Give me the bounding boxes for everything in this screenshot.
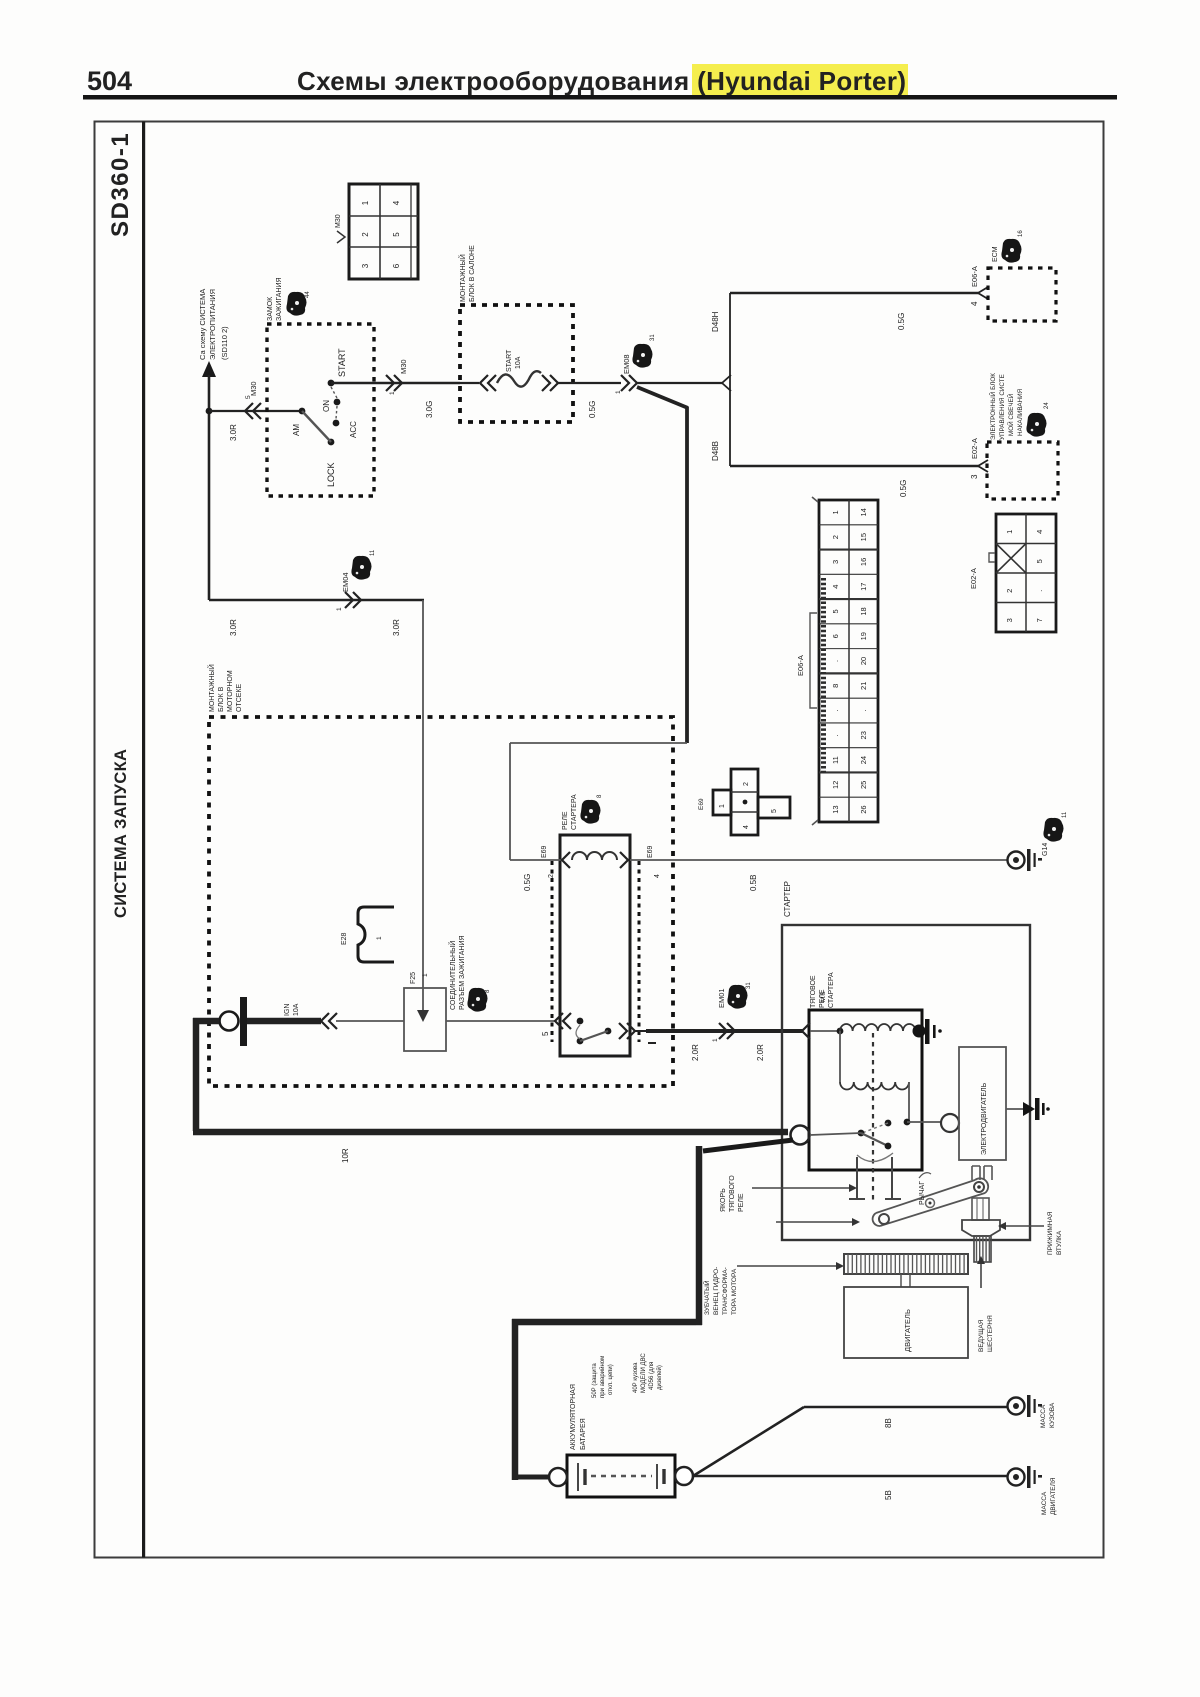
svg-text:Са схему СИСТЕМА: Са схему СИСТЕМА (198, 289, 207, 360)
svg-text:E69: E69 (698, 798, 705, 810)
svg-text:1: 1 (336, 607, 343, 611)
svg-text:М.S: М.S (821, 991, 827, 1002)
svg-text:5: 5 (392, 232, 401, 237)
svg-text:31: 31 (746, 982, 752, 989)
svg-text:17: 17 (859, 583, 868, 591)
svg-text:2: 2 (831, 535, 840, 539)
svg-text:дизелей): дизелей) (656, 1365, 663, 1390)
svg-text:11: 11 (831, 756, 840, 764)
svg-text:6: 6 (831, 634, 840, 638)
svg-text:при аварийном: при аварийном (599, 1356, 606, 1398)
svg-text:.: . (1035, 590, 1044, 592)
svg-text:3.0G: 3.0G (425, 401, 434, 418)
svg-text:F25: F25 (410, 972, 417, 984)
svg-text:14: 14 (859, 508, 868, 516)
svg-text:12: 12 (831, 781, 840, 789)
svg-text:4: 4 (654, 874, 661, 878)
svg-text:1: 1 (719, 804, 726, 808)
svg-text:2.0R: 2.0R (691, 1044, 700, 1061)
svg-text:LOCK: LOCK (326, 462, 336, 487)
svg-text:E06-A: E06-A (796, 655, 805, 676)
svg-text:3: 3 (970, 474, 979, 479)
svg-text:ЭЛЕКТРОННЫЙ БЛОК: ЭЛЕКТРОННЫЙ БЛОК (988, 373, 997, 440)
svg-text:5: 5 (831, 609, 840, 613)
svg-text:7: 7 (1035, 618, 1044, 622)
svg-text:10A: 10A (515, 356, 522, 369)
svg-text:11: 11 (370, 549, 376, 556)
svg-text:6: 6 (392, 263, 401, 268)
svg-text:ТОРА МОТОРА: ТОРА МОТОРА (731, 1268, 738, 1315)
svg-text:5: 5 (771, 809, 778, 813)
svg-text:EM04: EM04 (341, 572, 350, 592)
svg-text:11: 11 (1062, 811, 1068, 818)
svg-text:0.5G: 0.5G (588, 401, 597, 418)
svg-text:ВЕНЕЦ ГИДРО-: ВЕНЕЦ ГИДРО- (713, 1267, 720, 1315)
svg-text:D48B: D48B (711, 441, 720, 461)
svg-text:3: 3 (831, 560, 840, 564)
svg-text:G14: G14 (1042, 843, 1049, 856)
svg-text:M30: M30 (399, 359, 408, 374)
svg-text:504: 504 (87, 66, 132, 96)
svg-text:3.0R: 3.0R (392, 619, 401, 636)
svg-text:МОЙ СВЕЧЕЙ: МОЙ СВЕЧЕЙ (1006, 393, 1015, 436)
svg-text:5: 5 (245, 395, 252, 399)
svg-text:D48H: D48H (711, 311, 720, 332)
svg-text:2.0R: 2.0R (756, 1044, 765, 1061)
svg-text:НАКАЛИВАНИЯ: НАКАЛИВАНИЯ (1017, 388, 1024, 436)
svg-text:4: 4 (392, 200, 401, 205)
svg-text:РЕЛЕ: РЕЛЕ (738, 1193, 745, 1212)
svg-text:26: 26 (859, 805, 868, 813)
svg-text:БАТАРЕЯ: БАТАРЕЯ (580, 1418, 587, 1450)
svg-text:ЭЛЕКТРОДВИГАТЕЛЬ: ЭЛЕКТРОДВИГАТЕЛЬ (981, 1082, 988, 1155)
svg-text:5: 5 (1035, 559, 1044, 563)
svg-text:АККУМУЛЯТОРНАЯ: АККУМУЛЯТОРНАЯ (570, 1384, 577, 1450)
svg-text:1: 1 (389, 391, 396, 395)
svg-text:25: 25 (859, 781, 868, 789)
svg-text:2: 2 (743, 782, 750, 786)
svg-text:5: 5 (541, 1031, 550, 1036)
svg-text:ON: ON (322, 400, 331, 412)
svg-text:4: 4 (743, 825, 750, 829)
svg-text:50Р (защита: 50Р (защита (592, 1363, 598, 1398)
svg-text:4D56 (для: 4D56 (для (649, 1362, 655, 1390)
svg-text:ЗАМОК: ЗАМОК (267, 296, 274, 321)
svg-text:1: 1 (361, 200, 370, 205)
svg-text:3: 3 (1005, 618, 1014, 622)
svg-text:E69: E69 (647, 845, 654, 858)
svg-text:8B: 8B (884, 1418, 893, 1428)
svg-text:31: 31 (650, 334, 656, 341)
svg-text:START: START (337, 348, 347, 377)
svg-text:START: START (506, 349, 513, 372)
svg-text:ЗУБЧАТЫЙ: ЗУБЧАТЫЙ (702, 1280, 711, 1315)
svg-text:БЛОК В: БЛОК В (218, 686, 225, 712)
svg-text:EM08: EM08 (622, 354, 631, 374)
svg-text:СИСТЕМА ЗАПУСКА: СИСТЕМА ЗАПУСКА (112, 749, 130, 918)
svg-text:3.0R: 3.0R (229, 619, 238, 636)
svg-text:.: . (831, 734, 840, 736)
svg-text:13: 13 (831, 805, 840, 813)
svg-text:0.5G: 0.5G (899, 480, 908, 497)
svg-text:РЕЛЕ: РЕЛЕ (562, 811, 569, 830)
svg-text:откл. цепи): откл. цепи) (608, 1364, 614, 1395)
svg-text:ДВИГАТЕЛЯ: ДВИГАТЕЛЯ (1050, 1477, 1057, 1515)
svg-text:ДВИГАТЕЛЬ: ДВИГАТЕЛЬ (903, 1309, 912, 1352)
svg-text:4: 4 (1035, 530, 1044, 534)
svg-text:3.0R: 3.0R (229, 424, 238, 441)
svg-text:40Р кузова: 40Р кузова (633, 1362, 639, 1393)
svg-text:ЯКОРЬ: ЯКОРЬ (720, 1188, 727, 1212)
svg-text:ECM: ECM (992, 246, 999, 262)
svg-text:E02-A: E02-A (970, 438, 979, 459)
svg-text:.: . (831, 709, 840, 711)
svg-text:15: 15 (859, 533, 868, 541)
svg-text:AM: AM (292, 424, 301, 436)
svg-text:ACC: ACC (349, 421, 358, 438)
svg-text:МАССА: МАССА (1041, 1491, 1048, 1515)
svg-text:МОТОРНОМ: МОТОРНОМ (227, 670, 234, 712)
svg-text:EM01: EM01 (717, 988, 726, 1008)
svg-text:0.5B: 0.5B (749, 875, 758, 891)
svg-text:2: 2 (1005, 589, 1014, 593)
svg-text:0.5G: 0.5G (523, 874, 532, 891)
svg-text:ЭЛЕКТРОПИТАНИЯ: ЭЛЕКТРОПИТАНИЯ (208, 289, 217, 360)
svg-text:УПРАВЛЕНИЯ СИСТЕ: УПРАВЛЕНИЯ СИСТЕ (999, 374, 1006, 440)
svg-text:РЫЧАГ: РЫЧАГ (919, 1181, 926, 1205)
svg-text:МАССА: МАССА (1040, 1404, 1047, 1428)
svg-text:2: 2 (548, 874, 555, 878)
svg-text:1: 1 (615, 390, 622, 394)
svg-text:СТАРТЕРА: СТАРТЕРА (571, 794, 578, 830)
svg-text:2: 2 (361, 232, 370, 237)
svg-text:.: . (831, 660, 840, 662)
svg-text:ВЕДУЩАЯ: ВЕДУЩАЯ (978, 1319, 985, 1352)
svg-text:8: 8 (831, 684, 840, 688)
svg-text:(SD110 2): (SD110 2) (220, 326, 229, 360)
svg-text:РАЗЪЕМ ЗАЖИГАНИЯ: РАЗЪЕМ ЗАЖИГАНИЯ (459, 935, 466, 1010)
svg-text:ШЕСТЕРНЯ: ШЕСТЕРНЯ (987, 1315, 994, 1352)
svg-text:СТАРТЕРА: СТАРТЕРА (828, 972, 835, 1008)
svg-text:ОТСЕКЕ: ОТСЕКЕ (236, 683, 243, 712)
svg-text:10A: 10A (293, 1003, 300, 1016)
svg-text:10R: 10R (341, 1148, 350, 1163)
svg-text:23: 23 (859, 731, 868, 739)
svg-text:1: 1 (1005, 530, 1014, 534)
svg-text:ТЯГОВОГО: ТЯГОВОГО (729, 1175, 736, 1212)
svg-text:0.5G: 0.5G (897, 313, 906, 330)
svg-text:21: 21 (859, 682, 868, 690)
svg-text:МОНТАЖНЫЙ: МОНТАЖНЫЙ (207, 664, 216, 712)
svg-text:M30: M30 (335, 214, 342, 228)
svg-text:СТАРТЕР: СТАРТЕР (783, 881, 792, 917)
svg-text:IGN: IGN (284, 1004, 291, 1016)
svg-text:СОЕДИНИТЕЛЬНЫЙ: СОЕДИНИТЕЛЬНЫЙ (448, 941, 457, 1010)
svg-text:1: 1 (712, 1038, 719, 1042)
svg-text:16: 16 (1018, 230, 1024, 237)
svg-text:ТЯГОВОЕ: ТЯГОВОЕ (810, 975, 817, 1008)
svg-text:18: 18 (859, 607, 868, 615)
svg-text:E06-A: E06-A (970, 266, 979, 287)
svg-text:4: 4 (970, 301, 979, 306)
svg-text:.: . (859, 709, 868, 711)
svg-text:3: 3 (361, 263, 370, 268)
svg-text:ТРАНСФОРМА-: ТРАНСФОРМА- (722, 1267, 729, 1315)
svg-text:SD360-1: SD360-1 (107, 132, 134, 237)
svg-text:5B: 5B (884, 1490, 893, 1500)
svg-text:E02-A: E02-A (969, 568, 978, 589)
svg-text:ВТУЛКА: ВТУЛКА (1056, 1230, 1063, 1255)
svg-text:44: 44 (305, 291, 311, 298)
svg-text:16: 16 (859, 558, 868, 566)
svg-text:МОНТАЖНЫЙ: МОНТАЖНЫЙ (458, 254, 467, 302)
svg-text:24: 24 (859, 756, 868, 764)
svg-text:1: 1 (376, 936, 383, 940)
svg-text:19: 19 (859, 632, 868, 640)
svg-text:МОДЕЛИ ДВС: МОДЕЛИ ДВС (641, 1353, 647, 1393)
svg-text:E69: E69 (541, 845, 548, 858)
svg-text:M30: M30 (249, 381, 258, 396)
svg-text:БЛОК В САЛОНЕ: БЛОК В САЛОНЕ (469, 245, 476, 302)
svg-text:1: 1 (831, 510, 840, 514)
svg-text:24: 24 (1044, 402, 1050, 409)
svg-text:ЗАЖИГАНИЯ: ЗАЖИГАНИЯ (276, 277, 283, 321)
svg-text:1: 1 (422, 973, 429, 977)
svg-text:Схемы электрооборудования (Hyu: Схемы электрооборудования (Hyundai Porte… (297, 66, 906, 96)
svg-text:4: 4 (831, 585, 840, 589)
svg-text:E28: E28 (341, 932, 348, 945)
svg-text:20: 20 (859, 657, 868, 665)
svg-text:ПРИЖИМНАЯ: ПРИЖИМНАЯ (1047, 1211, 1054, 1255)
svg-text:КУЗОВА: КУЗОВА (1049, 1402, 1056, 1428)
